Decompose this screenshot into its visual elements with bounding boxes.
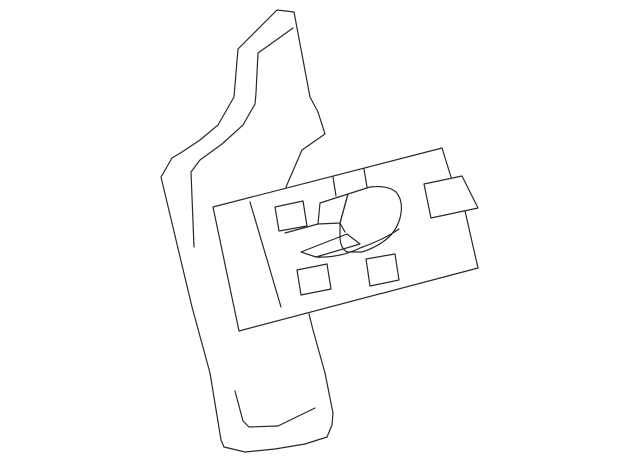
- panel-inner-edge-line: [191, 28, 293, 247]
- knob-fold-connector: [340, 223, 345, 232]
- button-hole-top-left: [275, 201, 307, 231]
- panel-outline: [161, 10, 333, 452]
- switch-plate-outline: [213, 148, 478, 331]
- button-hole-bottom-left: [297, 264, 331, 295]
- connector-tab: [424, 176, 478, 218]
- knob-band: [301, 234, 360, 257]
- parts-diagram-stage: [0, 0, 640, 464]
- button-hole-bottom-right: [366, 254, 399, 286]
- plate-tick-right: [364, 169, 367, 187]
- plate-tick-left: [333, 177, 336, 196]
- parts-diagram-canvas: [0, 0, 640, 464]
- panel-pocket-line: [235, 391, 315, 427]
- knob-top: [340, 187, 401, 252]
